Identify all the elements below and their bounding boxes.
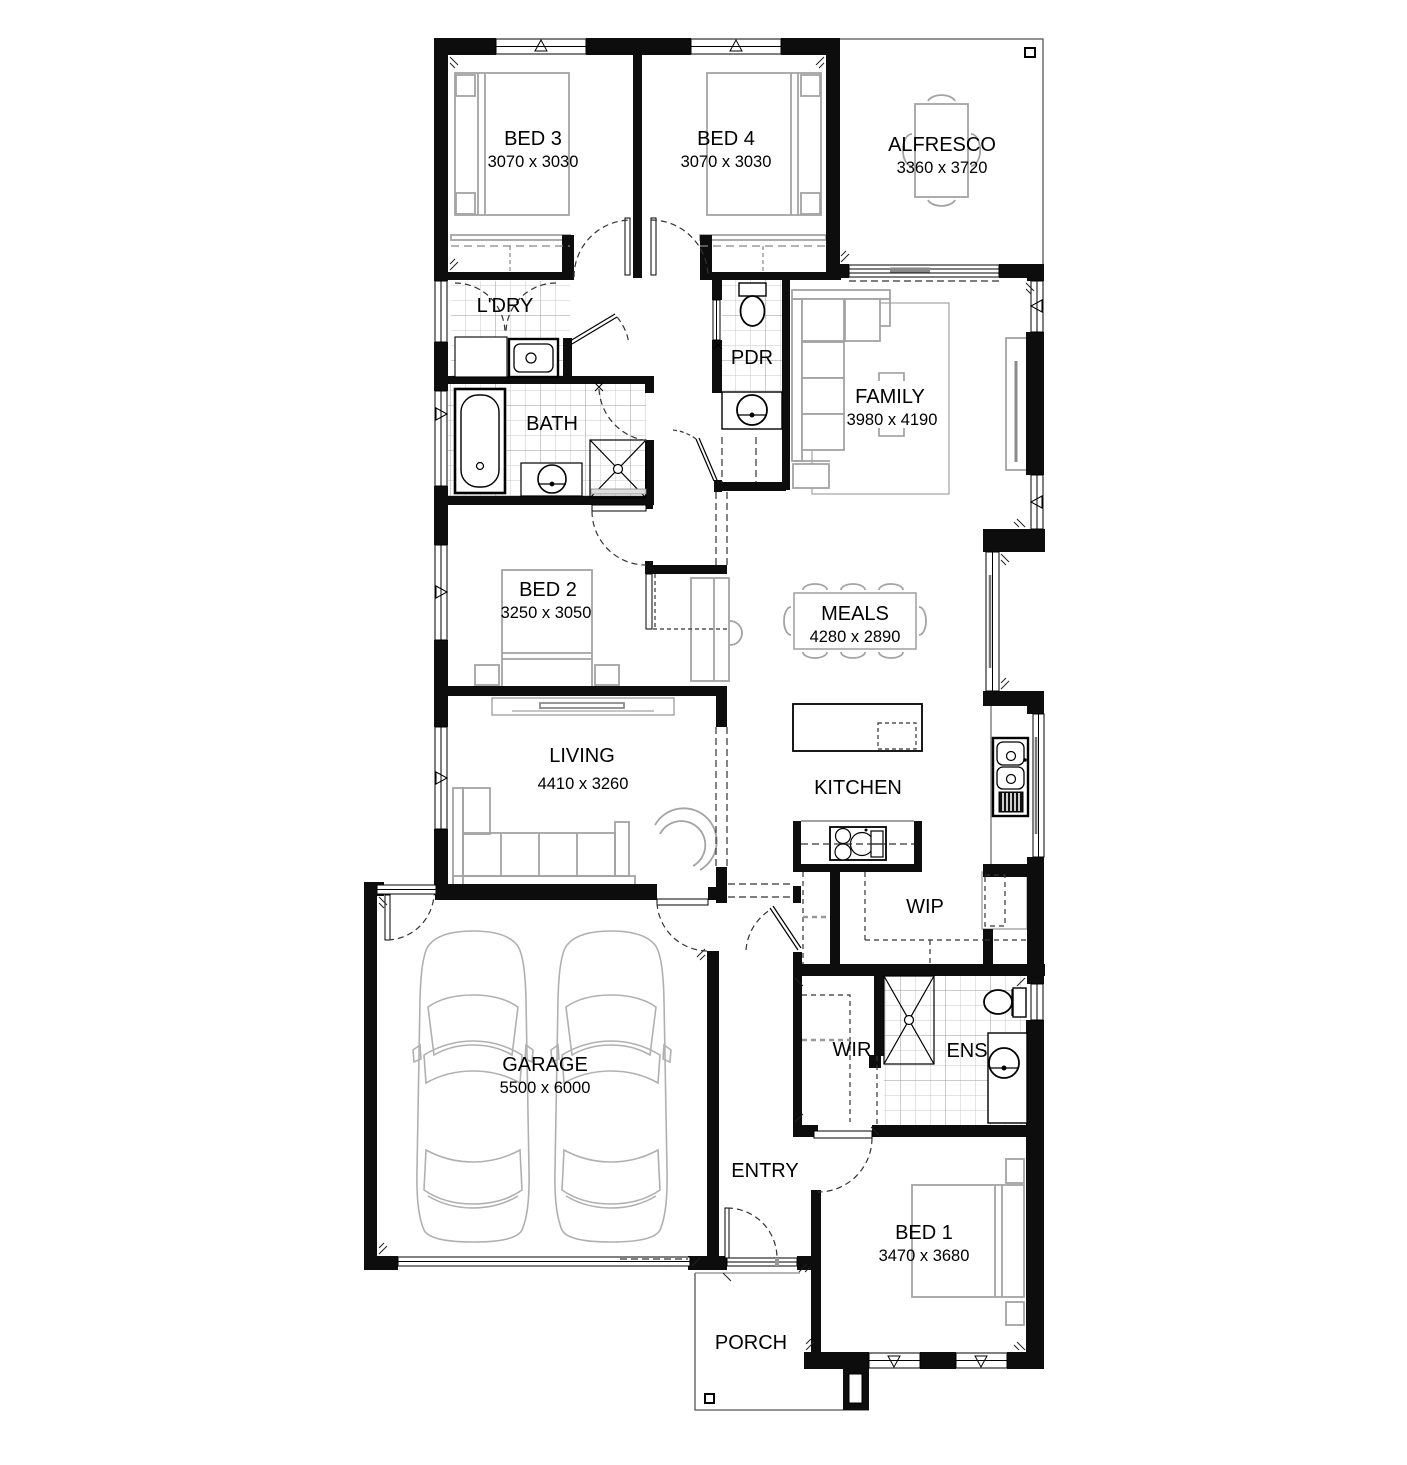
svg-text:ENTRY: ENTRY [731,1160,798,1182]
svg-text:WIP: WIP [906,896,944,918]
svg-text:KITCHEN: KITCHEN [814,777,902,799]
svg-text:3070 x 3030: 3070 x 3030 [681,153,772,171]
svg-text:3070 x 3030: 3070 x 3030 [488,153,579,171]
svg-text:3470 x 3680: 3470 x 3680 [879,1247,970,1265]
svg-text:ENS: ENS [946,1040,987,1062]
svg-text:3360 x 3720: 3360 x 3720 [897,159,988,177]
svg-text:MEALS: MEALS [821,603,889,625]
svg-text:4280 x 2890: 4280 x 2890 [810,628,901,646]
svg-text:4410 x 3260: 4410 x 3260 [538,775,629,793]
svg-text:WIR: WIR [833,1039,872,1061]
svg-text:FAMILY: FAMILY [855,386,925,408]
svg-text:BATH: BATH [526,413,578,435]
svg-text:BED 3: BED 3 [504,128,562,150]
svg-text:ALFRESCO: ALFRESCO [888,134,996,156]
svg-text:5500 x 6000: 5500 x 6000 [500,1079,591,1097]
svg-text:GARAGE: GARAGE [502,1054,588,1076]
svg-text:BED 4: BED 4 [697,128,755,150]
svg-text:3250 x 3050: 3250 x 3050 [501,604,592,622]
svg-text:L'DRY: L'DRY [477,295,534,317]
svg-text:PORCH: PORCH [715,1332,787,1354]
svg-text:BED 2: BED 2 [519,579,577,601]
svg-text:3980 x 4190: 3980 x 4190 [847,411,938,429]
svg-text:BED 1: BED 1 [895,1222,953,1244]
svg-text:PDR: PDR [731,347,773,369]
svg-text:LIVING: LIVING [549,745,615,767]
